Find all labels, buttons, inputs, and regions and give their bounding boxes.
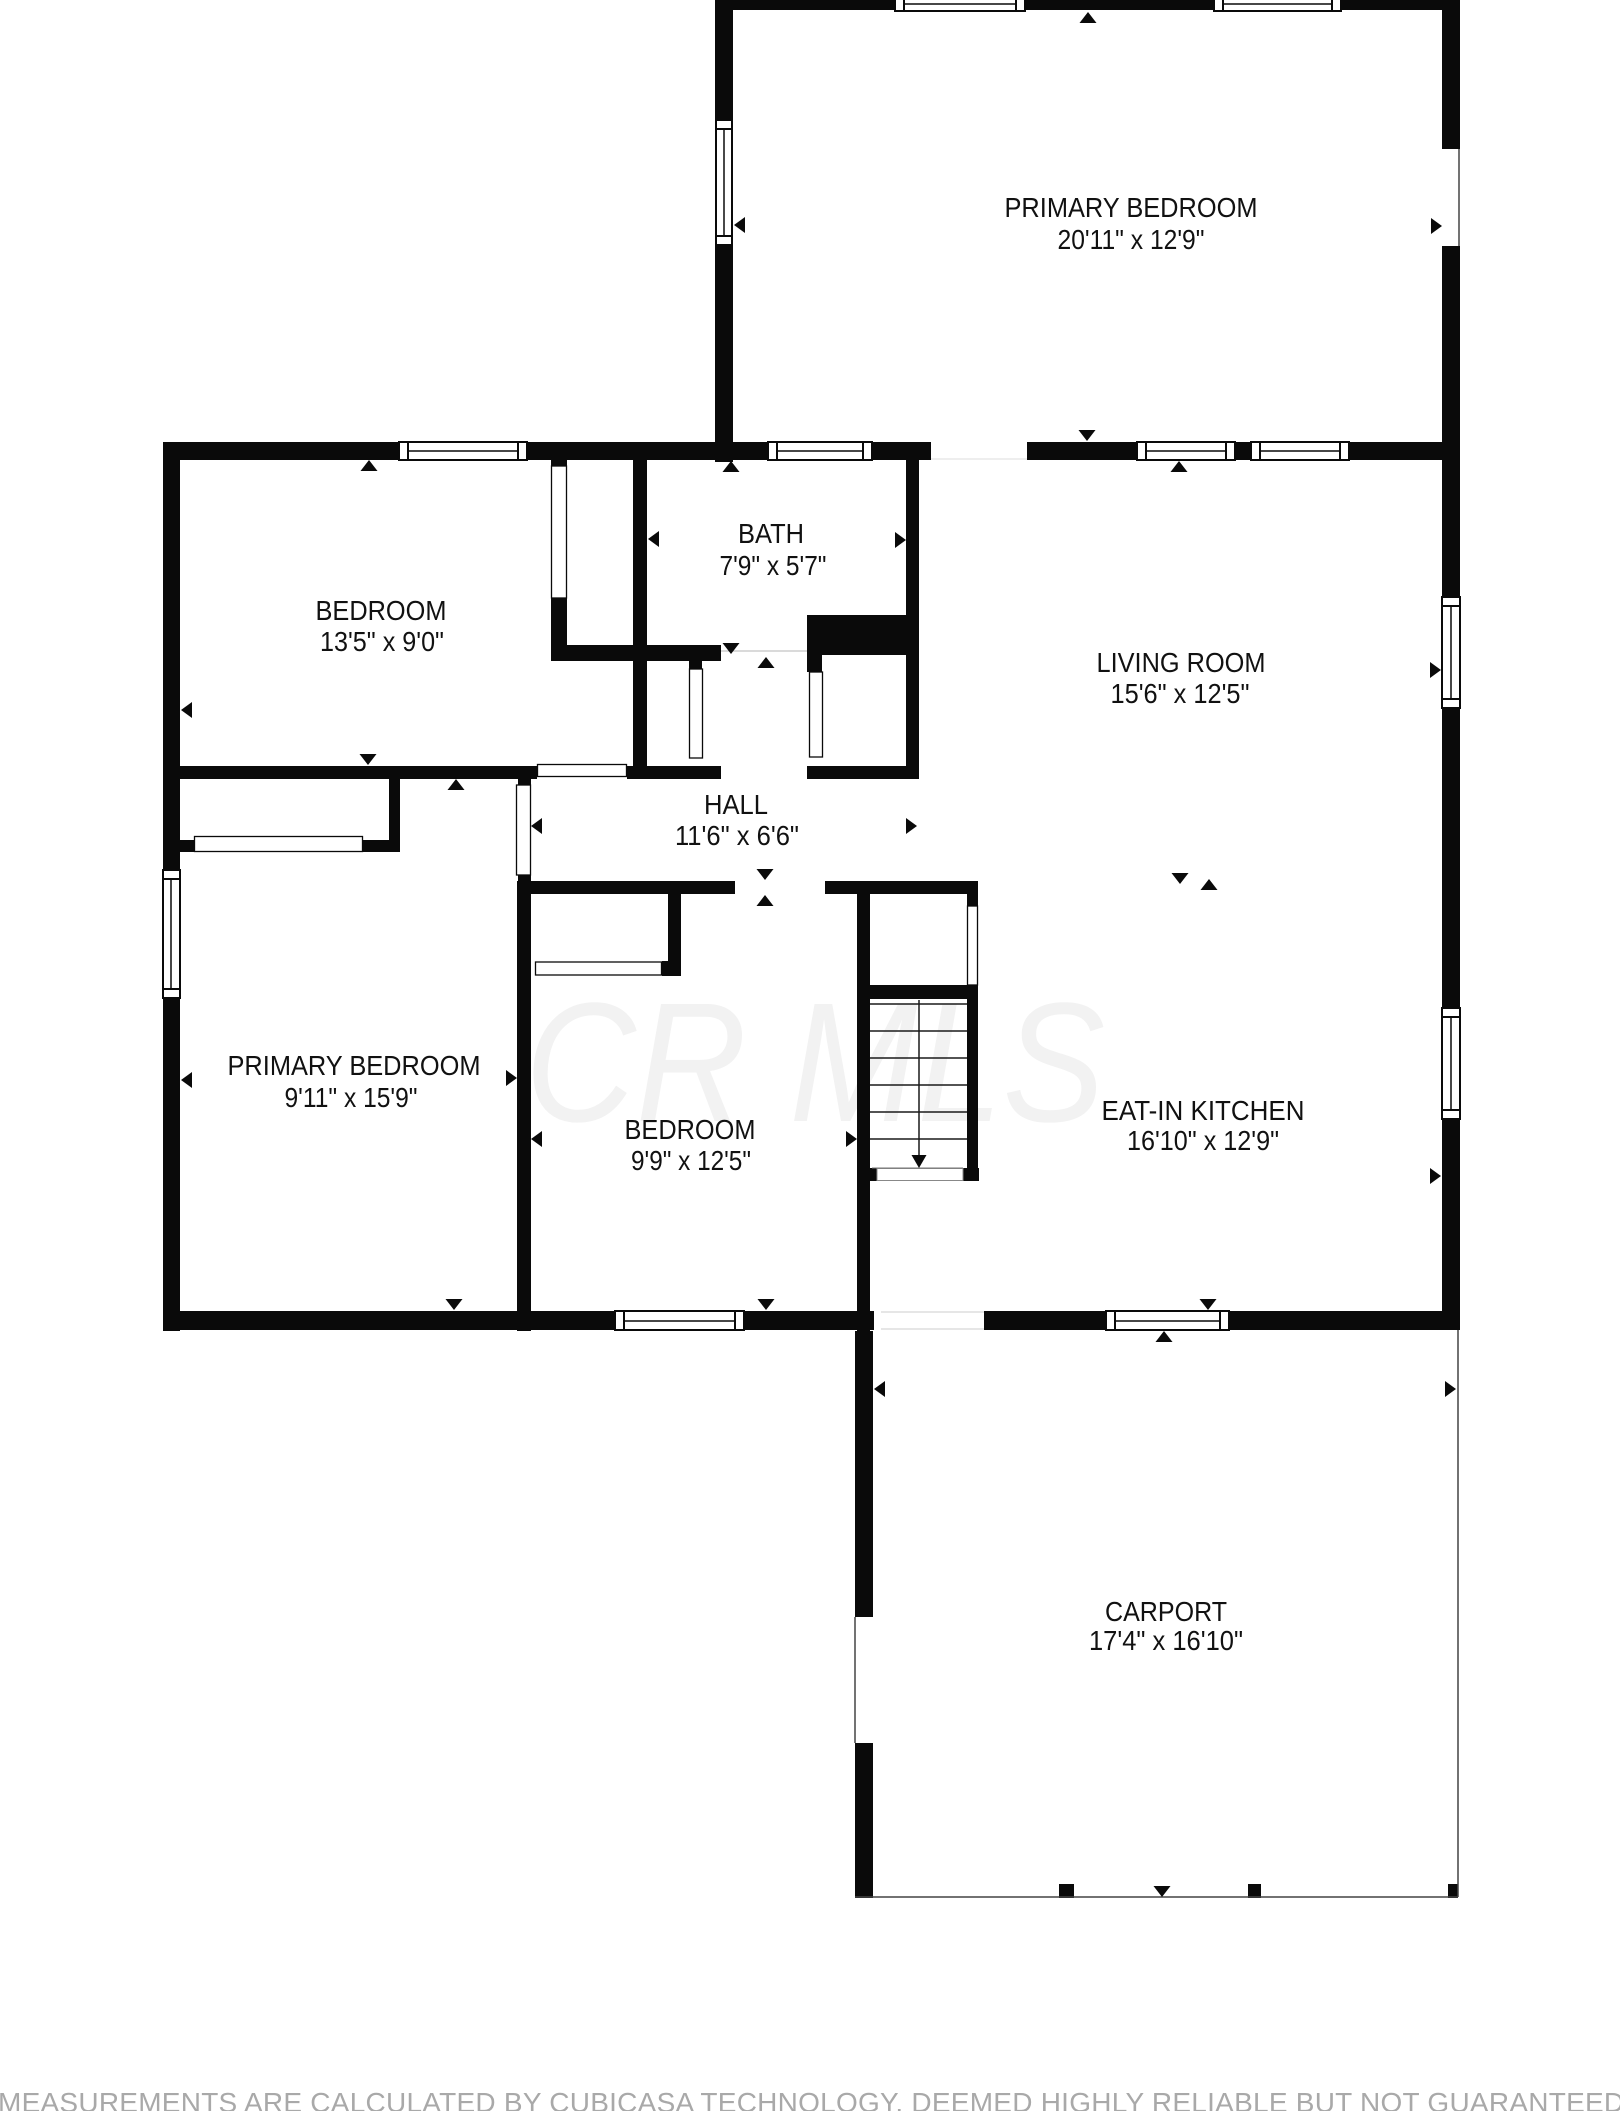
svg-text:BATH: BATH: [738, 518, 804, 549]
svg-text:LIVING ROOM: LIVING ROOM: [1097, 647, 1266, 678]
svg-text:CR MLS: CR MLS: [525, 968, 1105, 1158]
svg-text:16'10" x 12'9": 16'10" x 12'9": [1127, 1125, 1279, 1156]
svg-text:11'6" x 6'6": 11'6" x 6'6": [675, 820, 799, 851]
svg-text:PRIMARY BEDROOM: PRIMARY BEDROOM: [228, 1050, 481, 1081]
svg-text:20'11" x 12'9": 20'11" x 12'9": [1058, 224, 1205, 255]
svg-text:EAT-IN KITCHEN: EAT-IN KITCHEN: [1102, 1095, 1305, 1126]
svg-text:13'5" x 9'0": 13'5" x 9'0": [320, 626, 444, 657]
svg-text:MEASUREMENTS ARE CALCULATED BY: MEASUREMENTS ARE CALCULATED BY CUBICASA …: [0, 2087, 1620, 2111]
svg-text:9'9" x 12'5": 9'9" x 12'5": [631, 1145, 751, 1176]
svg-text:BEDROOM: BEDROOM: [316, 595, 447, 626]
svg-text:15'6" x 12'5": 15'6" x 12'5": [1111, 678, 1250, 709]
svg-text:BEDROOM: BEDROOM: [625, 1114, 756, 1145]
svg-text:PRIMARY BEDROOM: PRIMARY BEDROOM: [1005, 192, 1258, 223]
svg-text:7'9" x 5'7": 7'9" x 5'7": [720, 550, 827, 581]
svg-text:CARPORT: CARPORT: [1105, 1596, 1227, 1627]
svg-text:HALL: HALL: [704, 789, 768, 820]
svg-text:9'11" x 15'9": 9'11" x 15'9": [285, 1082, 418, 1113]
svg-text:17'4" x 16'10": 17'4" x 16'10": [1089, 1625, 1243, 1656]
